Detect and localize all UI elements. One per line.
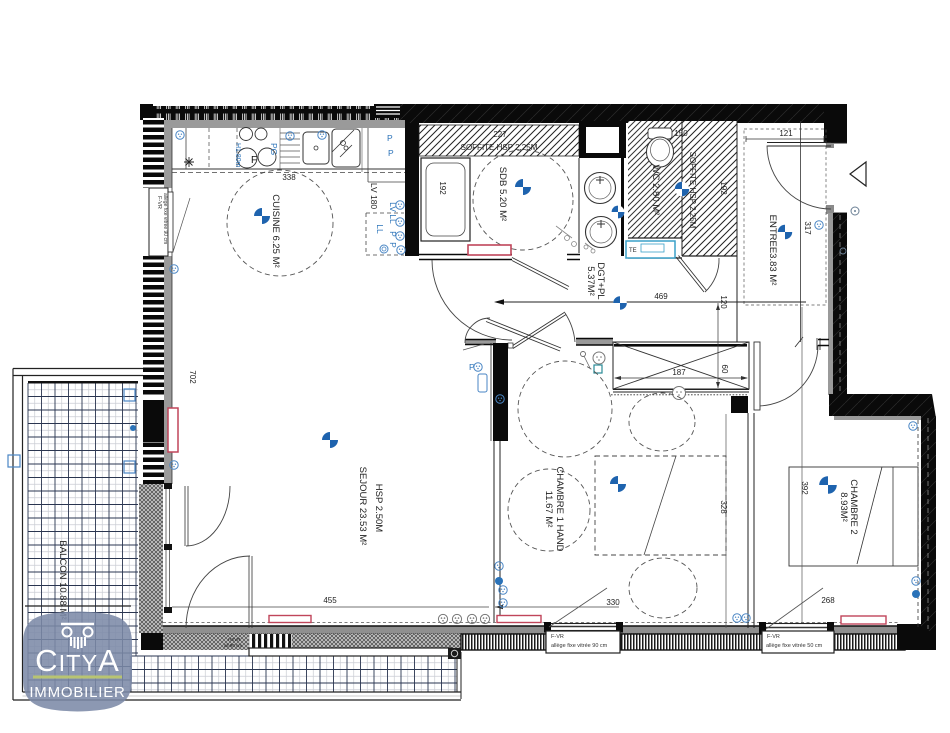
svg-text:allège fixe vitrée 90 cm: allège fixe vitrée 90 cm (551, 643, 608, 649)
svg-text:BALCON 10.88 M²: BALCON 10.88 M² (57, 540, 68, 619)
svg-text:CUISINE 6.25 M²: CUISINE 6.25 M² (270, 194, 281, 267)
svg-text:SOFFITE HSP 2.25M: SOFFITE HSP 2.25M (461, 143, 538, 152)
svg-text:IMMOBILIER: IMMOBILIER (29, 684, 125, 701)
svg-text:227: 227 (493, 130, 507, 139)
svg-text:PG: PG (269, 143, 279, 155)
svg-text:TE: TE (629, 248, 637, 254)
svg-text:5.37M²: 5.37M² (585, 266, 596, 296)
svg-text:HSP 2.50M: HSP 2.50M (373, 484, 384, 532)
svg-text:187: 187 (672, 368, 686, 377)
svg-text:F-VR: F-VR (767, 634, 780, 640)
svg-text:120: 120 (719, 295, 728, 309)
svg-text:LV: LV (388, 202, 398, 212)
svg-text:192: 192 (438, 181, 447, 195)
svg-text:H1.80m: H1.80m (234, 143, 241, 168)
svg-text:392: 392 (800, 481, 809, 495)
svg-text:SOFFITE HSP 2.25M: SOFFITE HSP 2.25M (688, 152, 697, 229)
svg-text:F: F (251, 155, 257, 166)
svg-text:P: P (388, 242, 398, 248)
svg-text:702: 702 (188, 370, 197, 384)
svg-text:LV 180: LV 180 (369, 183, 379, 210)
svg-text:469: 469 (654, 292, 668, 301)
svg-text:CHAMBRE 1 HAND: CHAMBRE 1 HAND (554, 467, 565, 552)
svg-text:LL: LL (388, 214, 398, 224)
svg-text:allège fixe vitrée 50 cm: allège fixe vitrée 50 cm (766, 643, 823, 649)
svg-text:HSVR: HSVR (228, 637, 241, 642)
svg-text:F-VR: F-VR (156, 196, 162, 209)
svg-text:150: 150 (674, 129, 688, 138)
svg-text:338: 338 (282, 173, 296, 182)
svg-text:P: P (388, 231, 398, 237)
svg-text:all.90 cm: all.90 cm (224, 643, 242, 648)
svg-text:8.93M²: 8.93M² (838, 492, 849, 522)
svg-text:11.67 M²: 11.67 M² (543, 491, 554, 528)
svg-text:455: 455 (323, 596, 337, 605)
svg-text:P: P (388, 148, 394, 158)
svg-text:P: P (387, 133, 393, 143)
svg-text:WC 2.80 M²: WC 2.80 M² (650, 165, 661, 216)
svg-text:317: 317 (803, 221, 812, 235)
svg-text:SDB 5.20 M²: SDB 5.20 M² (497, 167, 508, 221)
svg-text:F-VR: F-VR (551, 634, 564, 640)
svg-text:P: P (469, 362, 475, 372)
svg-text:LL: LL (375, 224, 385, 234)
svg-text:328: 328 (719, 500, 728, 514)
svg-text:allège fixe vitrée 90 cm: allège fixe vitrée 90 cm (162, 193, 168, 244)
svg-text:60: 60 (720, 365, 729, 374)
svg-text:121: 121 (779, 129, 793, 138)
svg-text:ENTREE3.83 M²: ENTREE3.83 M² (767, 215, 778, 286)
svg-text:SEJOUR 23.53 M²: SEJOUR 23.53 M² (357, 467, 368, 546)
svg-text:330: 330 (606, 598, 620, 607)
svg-text:268: 268 (821, 596, 835, 605)
svg-text:192: 192 (719, 181, 728, 195)
